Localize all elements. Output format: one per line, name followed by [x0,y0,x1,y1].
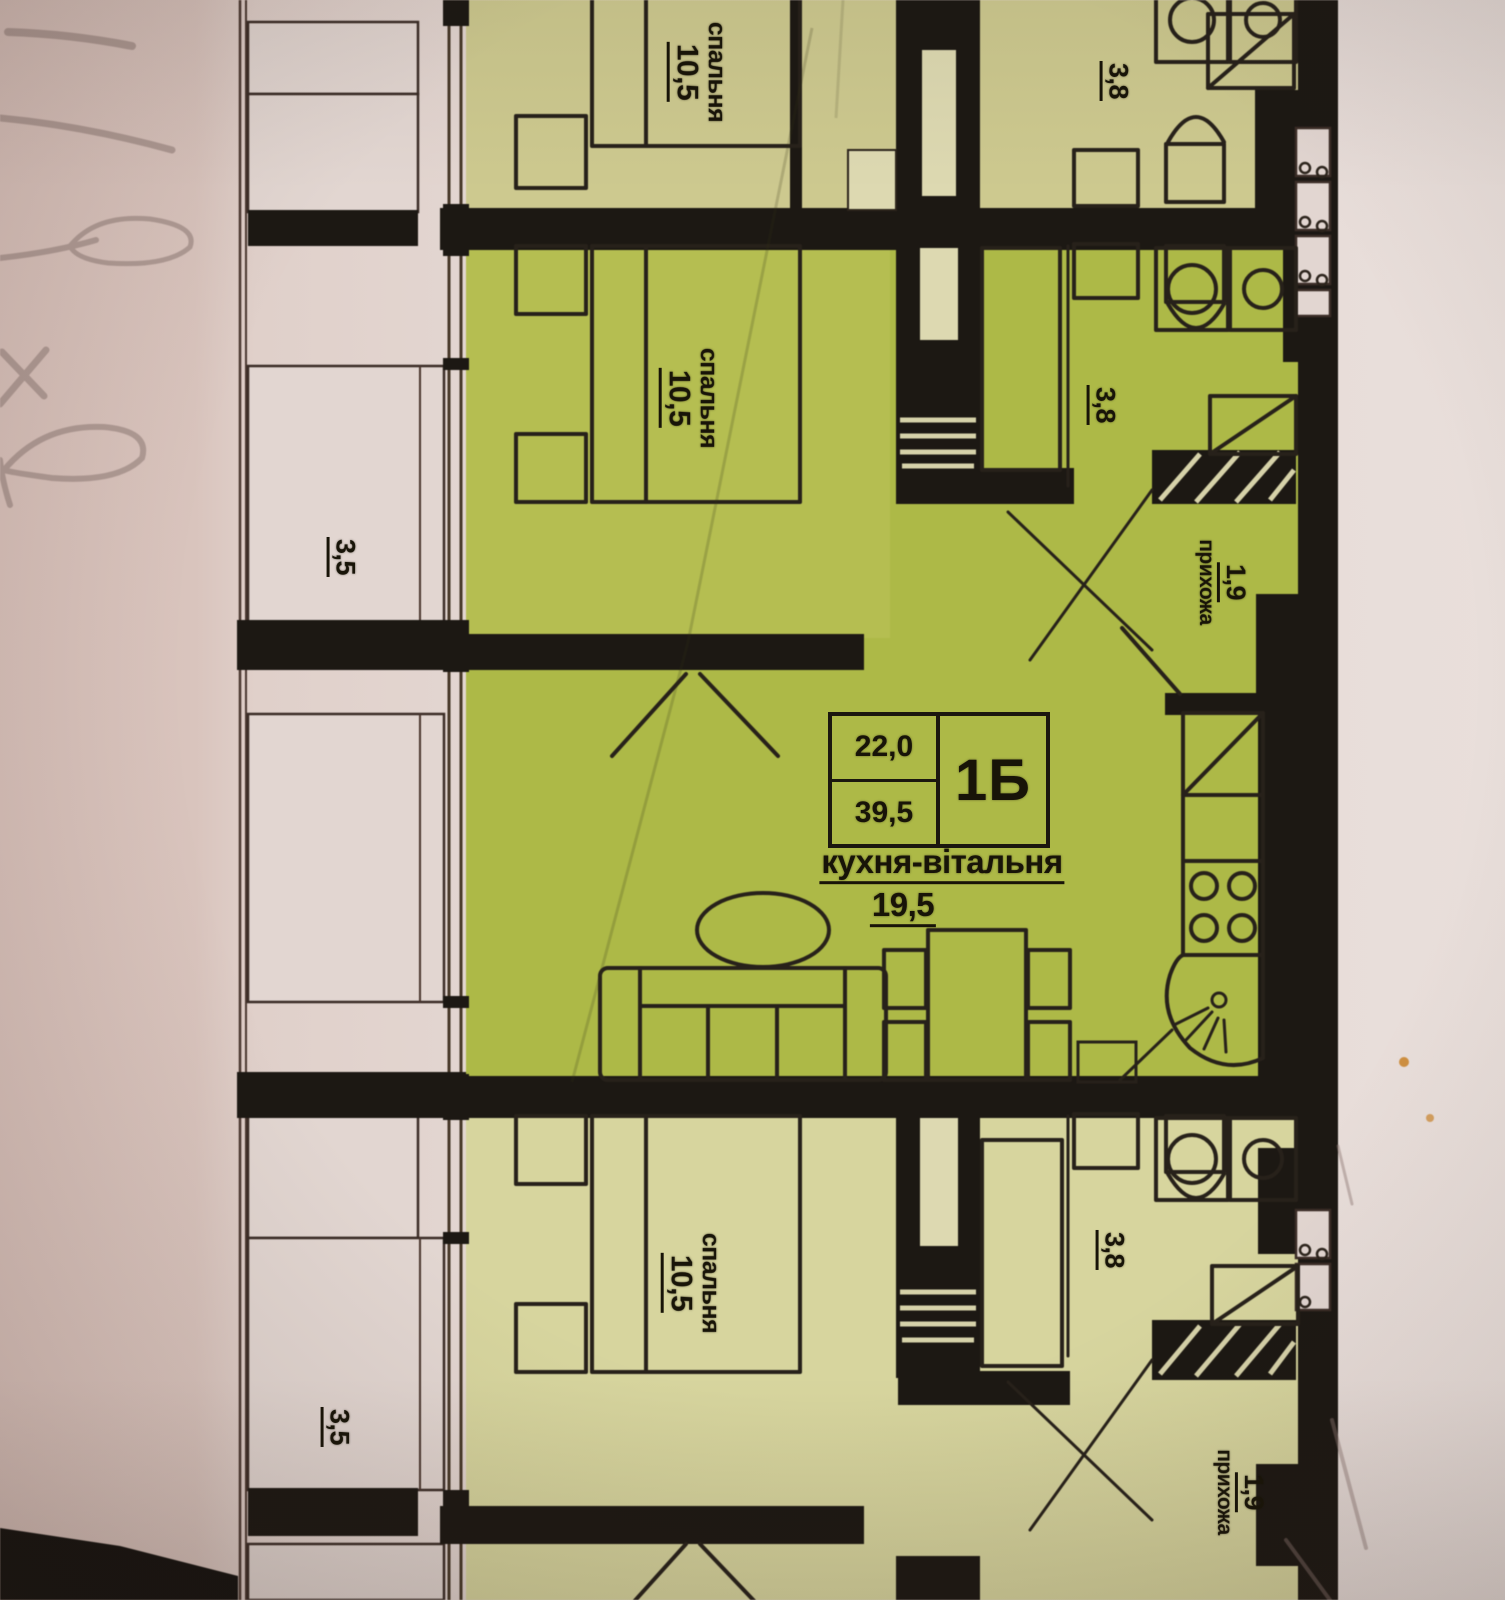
room-area: 1,9 [1235,1472,1268,1512]
room-area: 1,9 [1217,562,1250,602]
room-name: спальня [697,1233,724,1333]
paper-speck [1426,1114,1434,1122]
bathroom-label-top: 3,8 [1099,61,1132,101]
room-area: 3,5 [326,537,359,577]
room-area: 10,5 [660,1253,696,1313]
apartment-area-bottom: 39,5 [832,782,936,845]
room-area: 19,5 [870,887,936,927]
bedroom-label-middle: спальня 10,5 [658,348,721,448]
bathroom-label-middle: 3,8 [1086,385,1119,425]
balcony-label-middle: 3,5 [326,537,359,577]
pencil-handwriting [0,32,191,505]
room-name: прихожа [1194,539,1217,624]
hallway-label-bottom: 1,9 прихожа [1212,1449,1268,1534]
room-name: спальня [703,22,730,122]
apartment-code: 1Б [940,716,1046,844]
room-area: 3,8 [1095,1230,1128,1270]
room-name: спальня [695,348,722,448]
room-area: 3,5 [320,1407,353,1447]
room-name: прихожа [1212,1449,1235,1534]
room-name: кухня-вітальня [819,844,1064,884]
photo-corner-shadow [0,1528,238,1600]
room-area: 3,8 [1099,61,1132,101]
kitchen-living-label: кухня-вітальня [819,844,1064,884]
apartment-area-top: 22,0 [832,716,936,782]
bedroom-label-bottom: спальня 10,5 [660,1233,723,1333]
hallway-label-middle: 1,9 прихожа [1194,539,1250,624]
apartment-card: 22,0 39,5 1Б [828,712,1050,848]
kitchen-living-area-label: 19,5 [870,887,936,927]
balcony-label-bottom: 3,5 [320,1407,353,1447]
room-area: 3,8 [1086,385,1119,425]
paper-speck [1399,1057,1409,1067]
bathroom-label-bottom: 3,8 [1095,1230,1128,1270]
apartment-areas: 22,0 39,5 [832,716,940,844]
floor-plan-drawing [0,0,1505,1600]
room-area: 10,5 [658,368,694,428]
floor-plan-photo: спальня 10,5 спальня 10,5 спальня 10,5 3… [0,0,1505,1600]
bedroom-label-top: спальня 10,5 [666,22,729,122]
room-area: 10,5 [666,42,702,102]
